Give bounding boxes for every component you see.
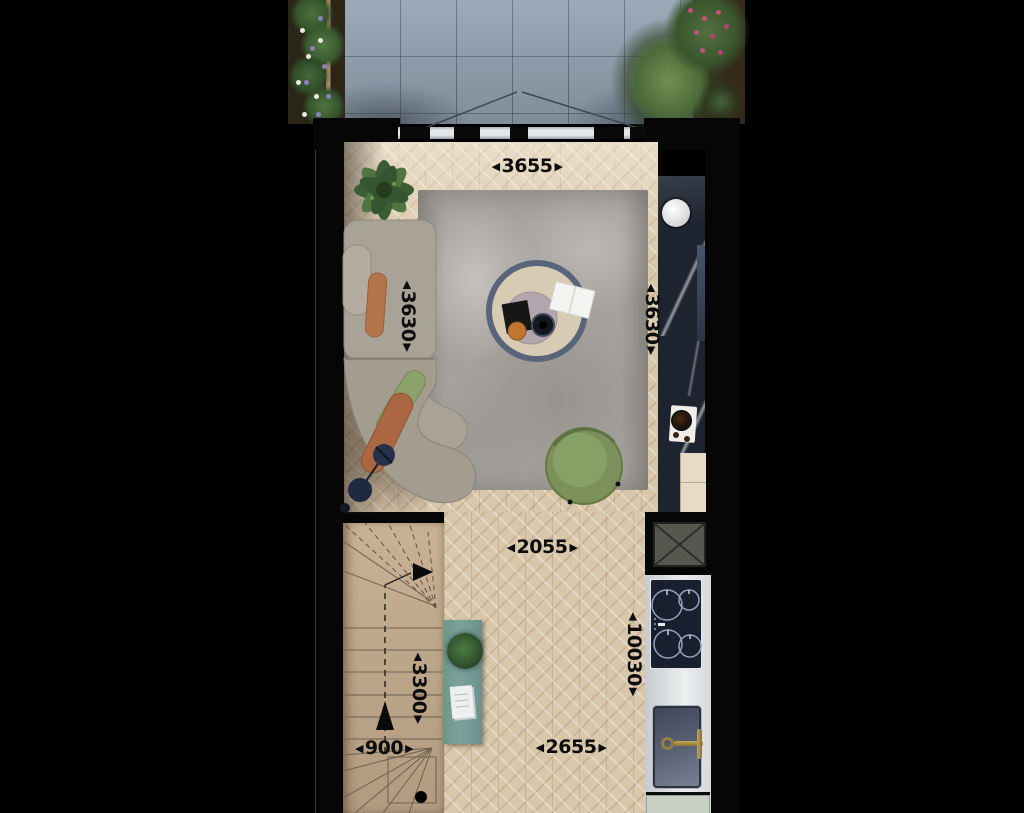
pillow-terracotta [365, 272, 387, 337]
dimension-label-3630-left: ◀ 3630 ▶ [397, 281, 419, 352]
purple-flowers [318, 16, 323, 21]
console-plant [447, 633, 483, 669]
dimension-label-3300: ◀ 3300 ▶ [408, 653, 430, 724]
plant [354, 160, 414, 220]
pink-flowers [688, 8, 693, 13]
appliance-front [646, 792, 710, 813]
dim-value: 3630 [641, 294, 663, 345]
dim-arrow-icon: ◀ [507, 542, 515, 553]
sliding-door [398, 127, 646, 139]
door-mullion [594, 127, 624, 139]
dim-arrow-icon: ▶ [629, 688, 640, 696]
dim-arrow-icon: ◀ [355, 743, 363, 754]
door-mullion [630, 127, 646, 139]
dim-arrow-icon: ▶ [569, 542, 577, 553]
stair-newel-dot [415, 791, 427, 803]
dim-value: 900 [365, 737, 403, 759]
dim-arrow-icon: ◀ [536, 742, 544, 753]
dim-arrow-icon: ▶ [598, 742, 606, 753]
induction-cooktop [650, 579, 702, 669]
magazines [450, 685, 475, 719]
terrace-planter-left [288, 0, 345, 124]
kitchen-cabinet [680, 453, 706, 512]
dim-arrow-icon: ▶ [414, 715, 425, 723]
dim-value: 3655 [502, 155, 553, 177]
fruit [508, 322, 526, 340]
dim-arrow-icon: ◀ [492, 161, 500, 172]
dim-arrow-icon: ▶ [647, 346, 658, 354]
snack-dot [684, 436, 690, 442]
armchair [546, 428, 622, 505]
dimension-label-900: ◀ 900 ▶ [355, 737, 413, 759]
dim-arrow-icon: ▶ [403, 343, 414, 351]
door-swing-lines [395, 82, 650, 132]
dim-value: 3300 [408, 663, 430, 714]
door-mullion [510, 127, 528, 139]
dim-arrow-icon: ▶ [405, 743, 413, 754]
living-room-furniture [330, 140, 660, 560]
dimension-label-3630-right: ◀ 3630 ▶ [641, 284, 663, 355]
dim-arrow-icon: ◀ [647, 284, 658, 292]
stair-exit-arrow-icon [413, 563, 433, 581]
coffee-table [489, 263, 595, 359]
dim-value: 2055 [517, 536, 568, 558]
coffee-cup [673, 412, 690, 429]
dimension-label-2655: ◀ 2655 ▶ [536, 736, 607, 758]
door-mullion [400, 127, 430, 139]
dim-arrow-icon: ◀ [403, 281, 414, 289]
drain-ring [661, 737, 674, 750]
dimension-label-2055: ◀ 2055 ▶ [507, 536, 578, 558]
built-in-appliance [697, 245, 705, 341]
dim-arrow-icon: ◀ [414, 653, 425, 661]
dim-value: 3630 [397, 291, 419, 342]
snack-dot [673, 432, 679, 438]
round-basin [662, 199, 690, 227]
dim-value: 2655 [546, 736, 597, 758]
faucet-lever [697, 729, 702, 759]
dim-arrow-icon: ◀ [629, 612, 640, 620]
door-mullion [454, 127, 480, 139]
dim-value: 10030 [623, 622, 645, 686]
dimension-label-10030: ◀ 10030 ▶ [623, 612, 645, 696]
floor-plan-canvas: ◀ 3655 ▶ ◀ 3630 ▶ ◀ 3630 ▶ ◀ 2055 ▶ ◀ 10… [0, 0, 1024, 813]
white-flowers [300, 28, 305, 33]
installation-shaft-symbol [653, 522, 706, 567]
dimension-label-3655: ◀ 3655 ▶ [492, 155, 563, 177]
dim-arrow-icon: ▶ [554, 161, 562, 172]
stair-up-arrow-icon [376, 701, 394, 730]
kitchen-sink [653, 706, 701, 788]
kitchen-counter-marble-end [658, 453, 680, 512]
